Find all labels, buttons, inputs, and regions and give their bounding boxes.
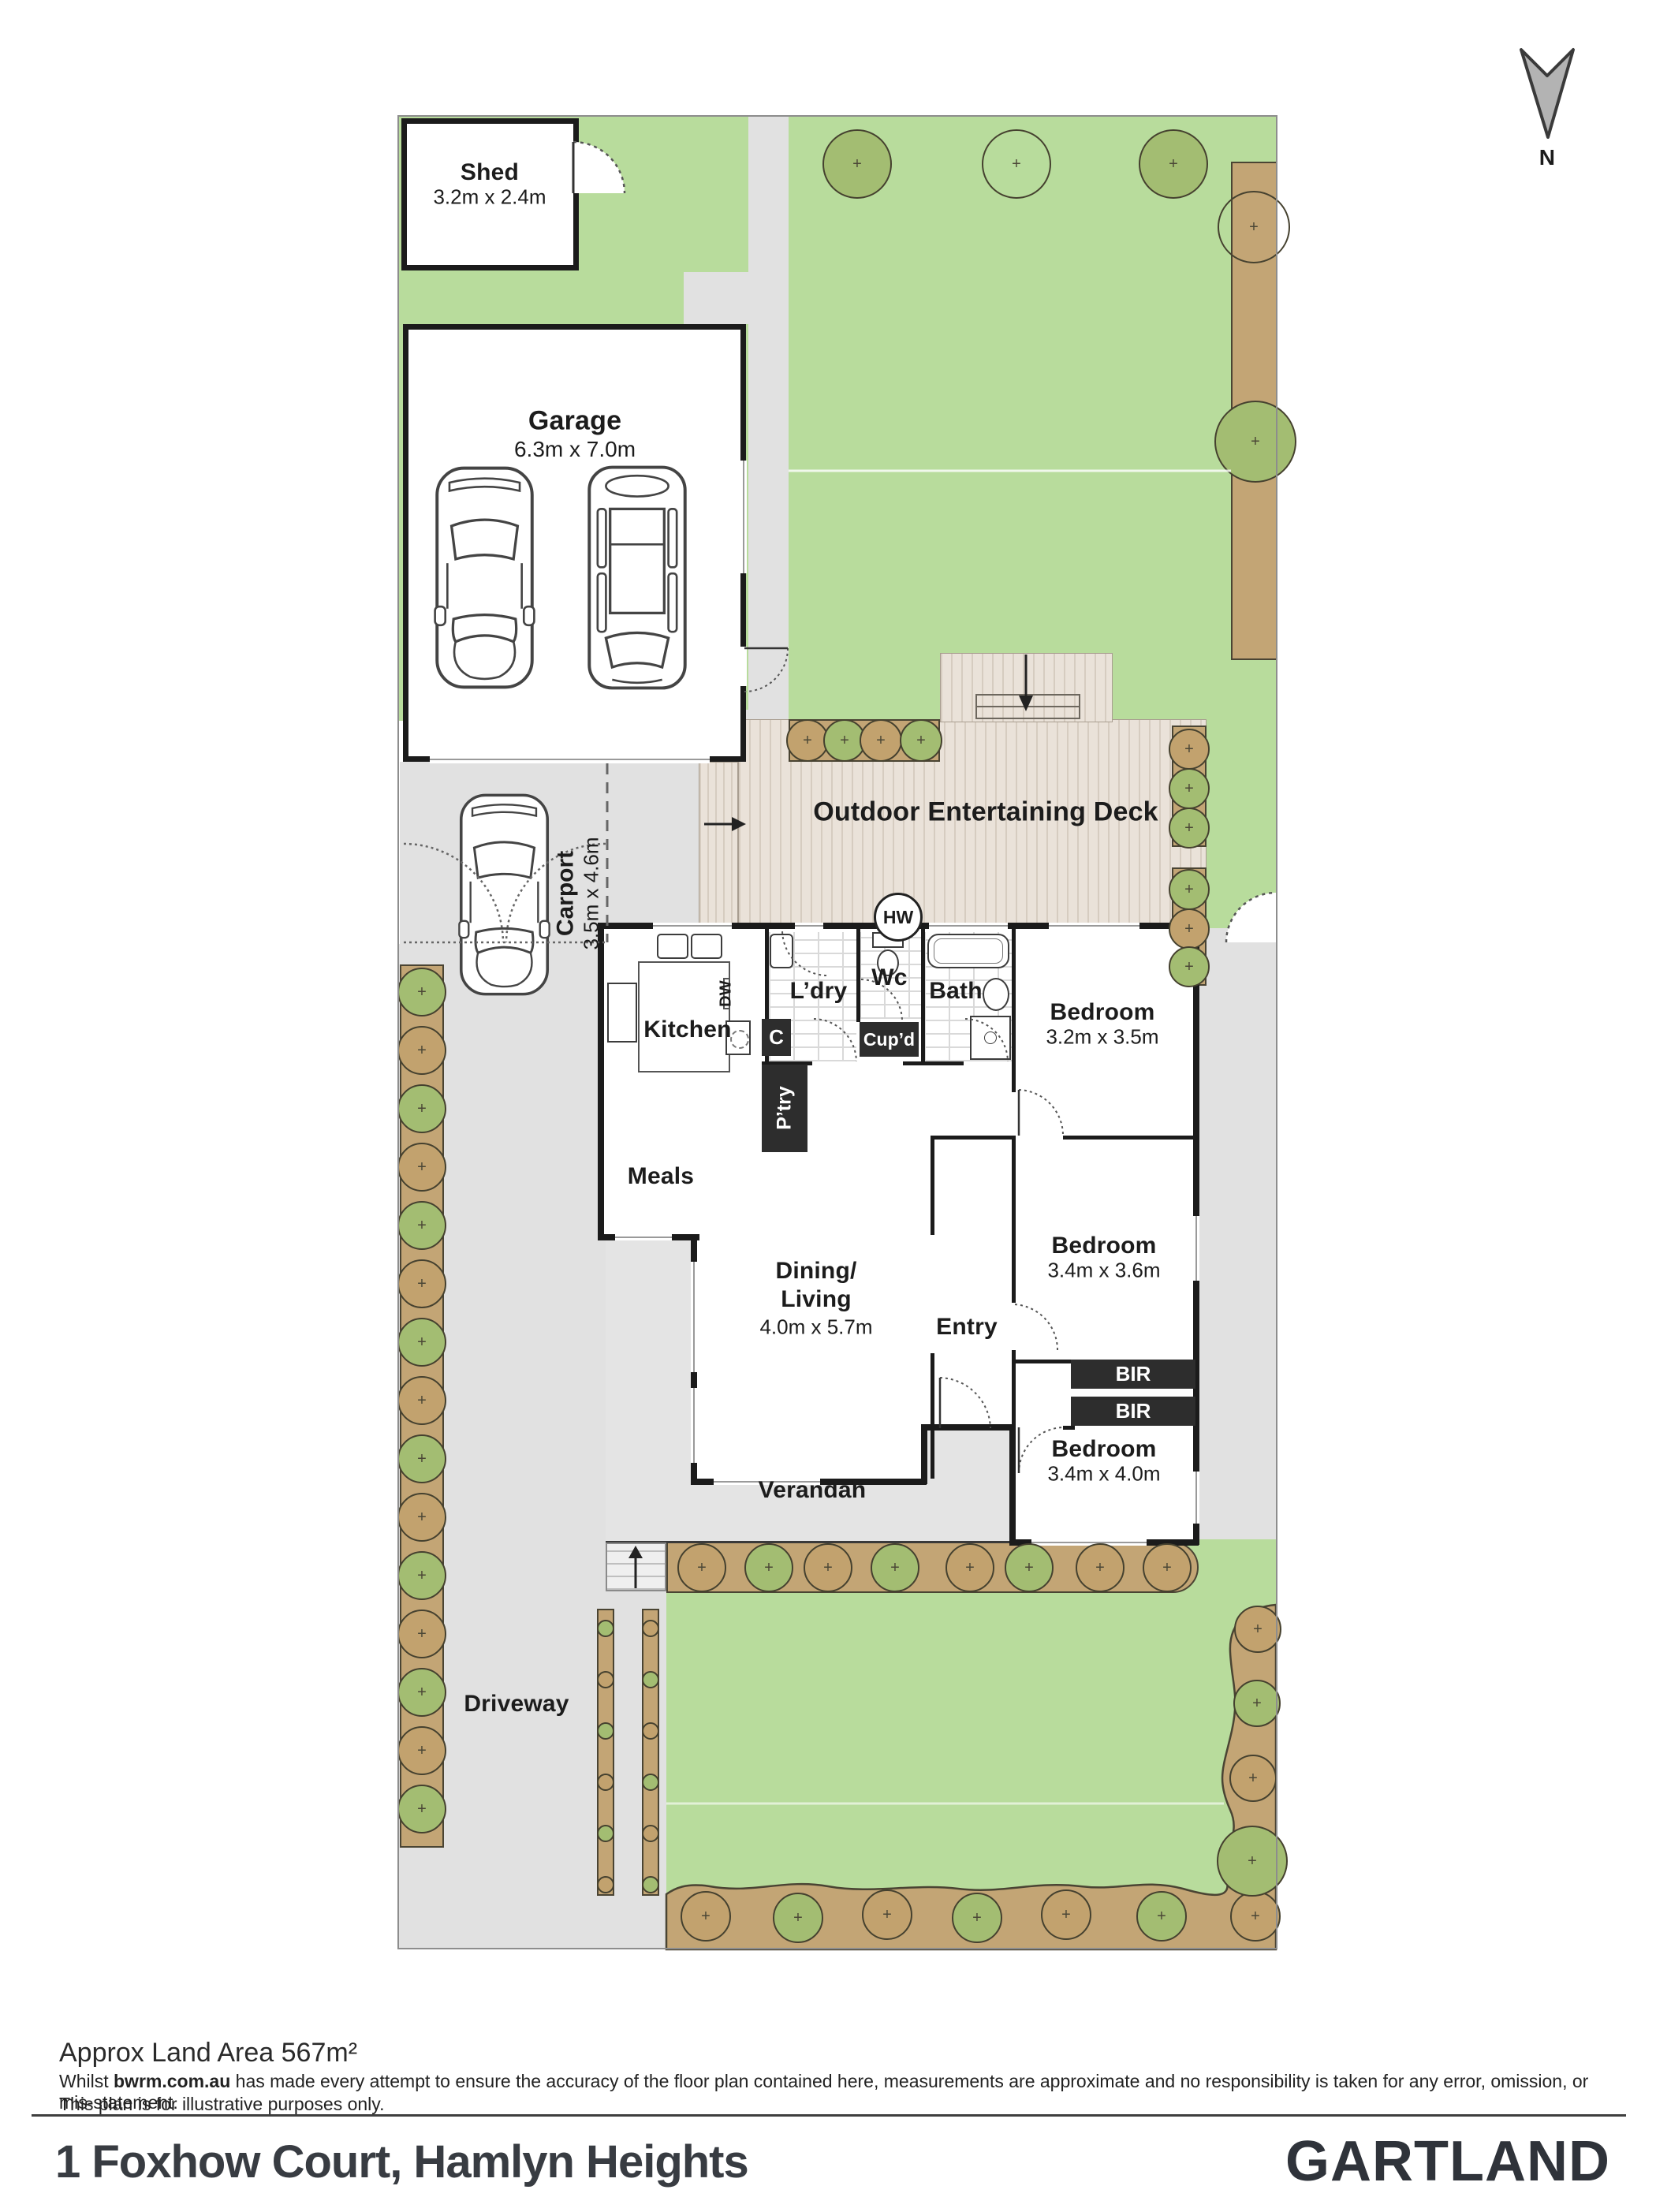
plant-icon xyxy=(597,1620,614,1637)
bush-icon: + xyxy=(1169,869,1210,910)
plant-icon xyxy=(597,1671,614,1688)
plant-icon xyxy=(597,1722,614,1740)
bush-icon: + xyxy=(1169,808,1210,849)
bush-icon: + xyxy=(397,1026,446,1075)
vegetation-layer: ++++++++++++++++++++++++++++++++++++++++… xyxy=(0,0,1656,2212)
bush-icon: + xyxy=(397,1376,446,1425)
bush-icon: + xyxy=(677,1543,726,1592)
disclaimer-bold: bwrm.com.au xyxy=(114,2071,230,2091)
entry-label: Entry xyxy=(936,1314,998,1341)
plant-icon xyxy=(642,1876,659,1893)
garage-dims: 6.3m x 7.0m xyxy=(514,437,636,462)
brand-logo: GARTLAND xyxy=(1285,2129,1610,2194)
land-area-text: Approx Land Area 567m² xyxy=(59,2038,357,2068)
bath-label: Bath xyxy=(929,978,982,1005)
bush-icon: + xyxy=(1229,1755,1277,1802)
tree-icon: + xyxy=(1214,401,1296,483)
bush-icon: + xyxy=(397,1434,446,1483)
dining-dims: 4.0m x 5.7m xyxy=(759,1315,872,1340)
bush-icon: + xyxy=(397,1259,446,1308)
shower-drain xyxy=(984,1031,997,1044)
bedroom2-dims: 3.4m x 3.6m xyxy=(1047,1259,1160,1283)
bush-icon: + xyxy=(1076,1543,1125,1592)
shed-dims: 3.2m x 2.4m xyxy=(433,185,546,210)
laundry-label: L’dry xyxy=(790,978,848,1005)
bush-icon: + xyxy=(900,719,942,762)
bush-icon: + xyxy=(1169,946,1210,987)
bush-icon: + xyxy=(681,1891,731,1942)
deck-label: Outdoor Entertaining Deck xyxy=(813,797,1158,828)
bush-icon: + xyxy=(1217,1826,1288,1897)
bush-icon: + xyxy=(1169,729,1210,770)
tree-icon: + xyxy=(1218,191,1290,263)
bush-icon: + xyxy=(862,1889,912,1940)
bush-icon: + xyxy=(952,1893,1002,1943)
bush-icon: + xyxy=(1169,908,1210,949)
dining-label-2: Living xyxy=(781,1286,852,1313)
plant-icon xyxy=(642,1774,659,1791)
bedroom2-label: Bedroom xyxy=(1051,1233,1156,1259)
disclaimer-pre: Whilst xyxy=(59,2071,114,2091)
bush-icon: + xyxy=(397,1726,446,1775)
hot-water-label: HW xyxy=(883,907,913,928)
bush-icon: + xyxy=(397,1318,446,1367)
dining-label-1: Dining/ xyxy=(775,1258,856,1285)
carport-label: Carport xyxy=(553,837,580,949)
bush-icon: + xyxy=(945,1543,994,1592)
bush-icon: + xyxy=(1143,1543,1192,1592)
kitchen-label: Kitchen xyxy=(643,1016,731,1043)
hot-water-unit: HW xyxy=(874,893,923,942)
bush-icon: + xyxy=(1041,1889,1091,1940)
bush-icon: + xyxy=(397,1551,446,1600)
bush-icon: + xyxy=(860,719,902,762)
bush-icon: + xyxy=(397,1493,446,1542)
bedroom3-dims: 3.4m x 4.0m xyxy=(1047,1462,1160,1486)
bush-icon: + xyxy=(804,1543,852,1592)
carport-label-group: Carport 3.5m x 4.6m xyxy=(553,837,604,949)
disclaimer-line-2: This plan is for illustrative purposes o… xyxy=(59,2094,384,2115)
bush-icon: + xyxy=(397,1610,446,1658)
tree-icon: + xyxy=(982,129,1051,199)
bathtub-inner xyxy=(934,938,1003,964)
bedroom3-label: Bedroom xyxy=(1051,1436,1156,1463)
plant-icon xyxy=(597,1825,614,1842)
tree-icon: + xyxy=(822,129,892,199)
verandah-label: Verandah xyxy=(759,1477,867,1504)
bush-icon: + xyxy=(397,1785,446,1833)
oven-burner-icon xyxy=(730,1030,749,1049)
bush-icon: + xyxy=(1005,1543,1054,1592)
floor-plan-page: C P’try Cup’d BIR BIR HW xyxy=(0,0,1656,2212)
bush-icon: + xyxy=(1233,1680,1281,1727)
tree-icon: + xyxy=(1139,129,1208,199)
footer-divider xyxy=(32,2114,1626,2117)
plant-icon xyxy=(642,1722,659,1740)
wc-label: Wc xyxy=(871,964,907,991)
meals-label: Meals xyxy=(628,1163,694,1190)
bush-icon: + xyxy=(397,1668,446,1717)
bush-icon: + xyxy=(1234,1606,1281,1653)
bush-icon: + xyxy=(1169,768,1210,809)
bush-icon: + xyxy=(871,1543,919,1592)
plant-icon xyxy=(642,1671,659,1688)
bush-icon: + xyxy=(397,1143,446,1192)
bedroom1-label: Bedroom xyxy=(1050,999,1154,1026)
dishwasher-label: DW xyxy=(718,980,736,1007)
bush-icon: + xyxy=(744,1543,793,1592)
bush-icon: + xyxy=(786,719,829,762)
driveway-label: Driveway xyxy=(464,1691,569,1718)
shed-label: Shed xyxy=(461,159,519,186)
plant-icon xyxy=(642,1825,659,1842)
bush-icon: + xyxy=(1230,1891,1281,1942)
address-title: 1 Foxhow Court, Hamlyn Heights xyxy=(55,2136,748,2188)
bush-icon: + xyxy=(397,1201,446,1250)
bedroom1-dims: 3.2m x 3.5m xyxy=(1046,1025,1158,1050)
bush-icon: + xyxy=(397,1084,446,1133)
plant-icon xyxy=(642,1620,659,1637)
bush-icon: + xyxy=(773,1893,823,1943)
carport-dims: 3.5m x 4.6m xyxy=(580,837,604,949)
compass-label: N xyxy=(1539,145,1555,170)
plant-icon xyxy=(597,1774,614,1791)
garage-label: Garage xyxy=(528,406,621,437)
bush-icon: + xyxy=(397,968,446,1016)
bush-icon: + xyxy=(1136,1891,1187,1942)
plant-icon xyxy=(597,1876,614,1893)
